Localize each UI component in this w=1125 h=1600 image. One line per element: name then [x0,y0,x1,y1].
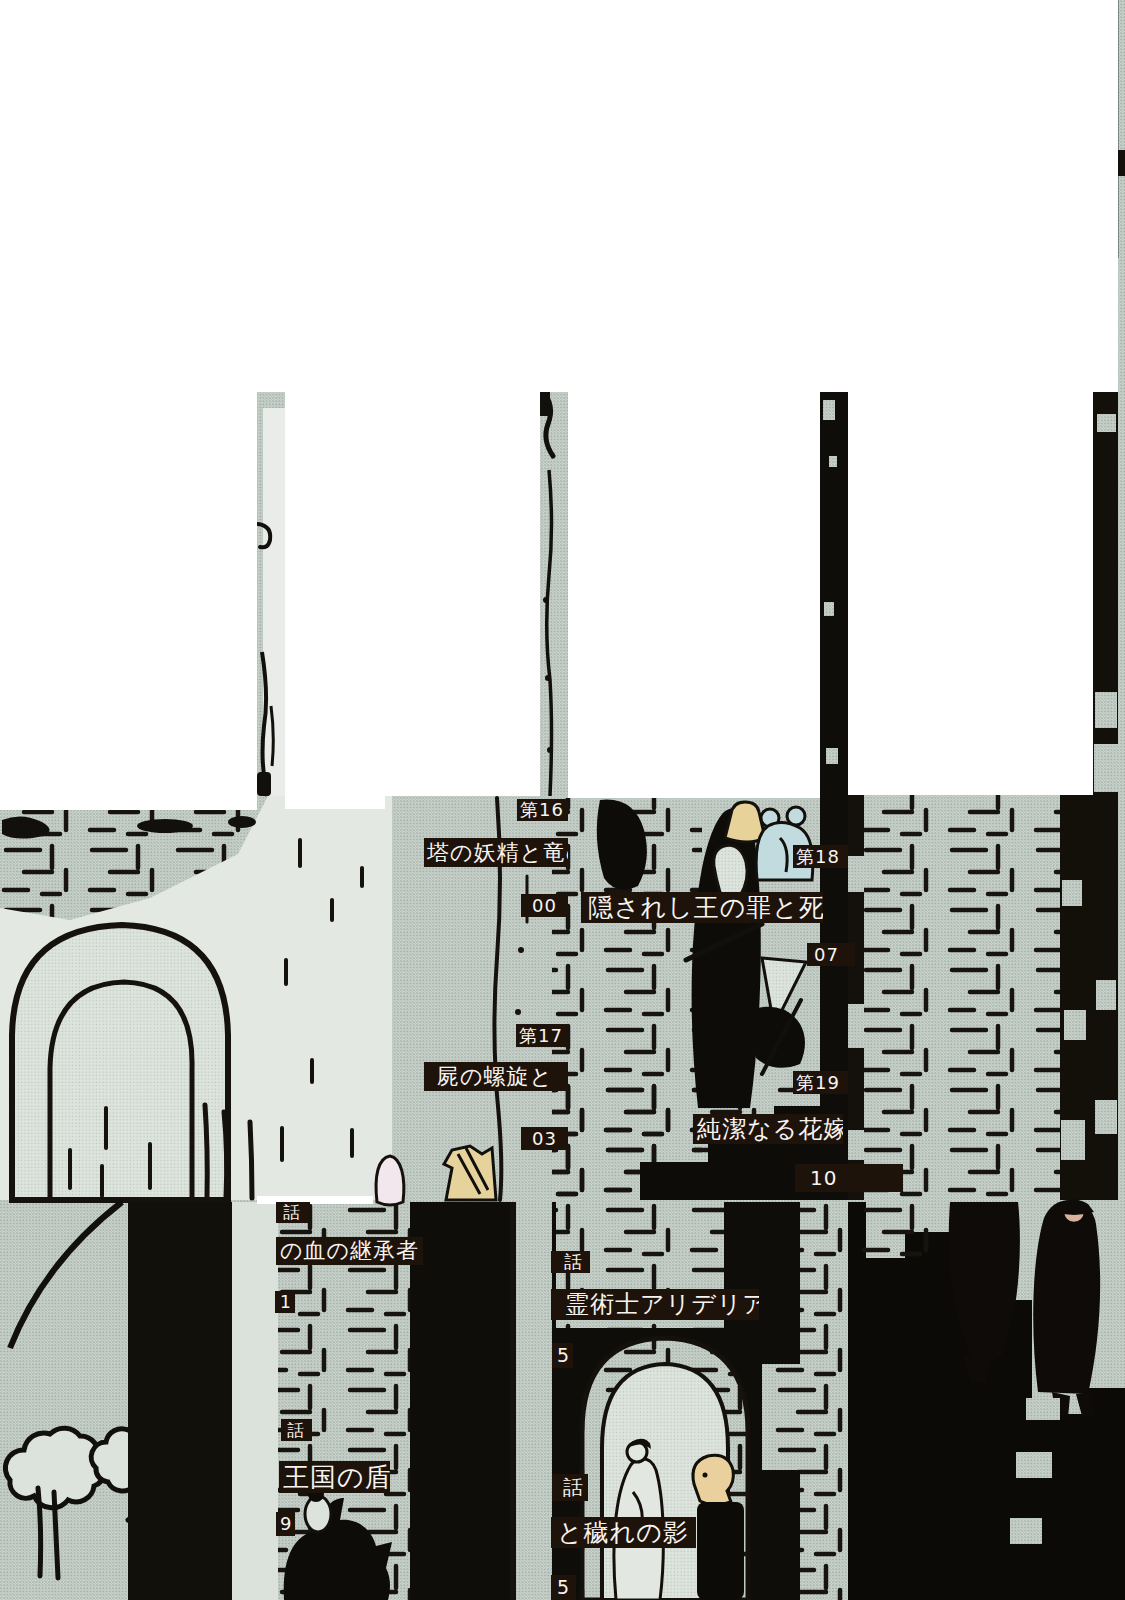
toc-entry-17-number: 第17 [516,1024,568,1047]
toc-entry-21-title: 王国の盾 [279,1461,390,1493]
toc-entry-21-page: 9 [276,1512,295,1536]
light-column-2 [516,1202,552,1600]
toc-entry-20-title: の血の継承者 [276,1237,423,1265]
toc-entry-23-number: 話 [552,1474,588,1501]
toc-entry-19-number: 第19 [793,1071,848,1094]
toc-entry-23-page: 5 [551,1575,576,1600]
toc-entry-22-page: 5 [552,1343,573,1368]
light-column-2-edge [510,1202,516,1600]
blank-tile-row1-b [285,392,540,796]
dark-band-mid [410,1202,510,1600]
blank-tile-ragged-a [0,796,257,810]
blank-tile-row1-c [568,392,820,798]
blank-tile-row1-d [848,392,1093,795]
staircase-scene [848,1199,1125,1600]
stone-arch-wall [0,796,392,1200]
toc-entry-23-title: と穢れの影 [551,1517,696,1548]
ghost-figure [376,1156,404,1205]
toc-entry-17-title: 屍の螺旋と [424,1062,568,1091]
light-column [232,1202,278,1600]
toc-entry-22-number: 話 [551,1251,590,1273]
manga-toc-page: 第16 塔の妖精と竜の 00 第17 屍の螺旋と 03 第18 隠されし王の罪と… [0,0,1125,1600]
blank-tile-ragged-e [257,1196,373,1204]
toc-entry-18-title: 隠されし王の罪と死 [581,892,823,923]
blank-tile-top [0,0,1118,392]
ladder-figure [444,1146,496,1200]
toc-entry-21-number: 話 [281,1419,312,1441]
dark-band-left [128,1202,232,1600]
toc-entry-16-number: 第16 [517,799,568,821]
toc-entry-20-page: 1 [275,1291,295,1313]
toc-entry-19-title: 純潔なる花嫁 [693,1114,843,1144]
toc-entry-17-page: 03 [521,1127,568,1150]
toc-entry-19-page: 10 [795,1164,903,1192]
toc-entry-22-title: 霊術士アリデリア [551,1289,759,1320]
toc-entry-18-page: 07 [807,943,855,966]
toc-entry-18-number: 第18 [793,845,848,868]
toc-entry-16-title: 塔の妖精と竜の [424,838,568,867]
blank-tile-ragged-b [285,796,385,809]
toc-entry-20-number: 話 [276,1202,310,1223]
blank-tile-row1-a [0,392,257,796]
castle-wall-right [848,795,1093,1200]
toc-entry-16-page: 00 [521,894,568,917]
